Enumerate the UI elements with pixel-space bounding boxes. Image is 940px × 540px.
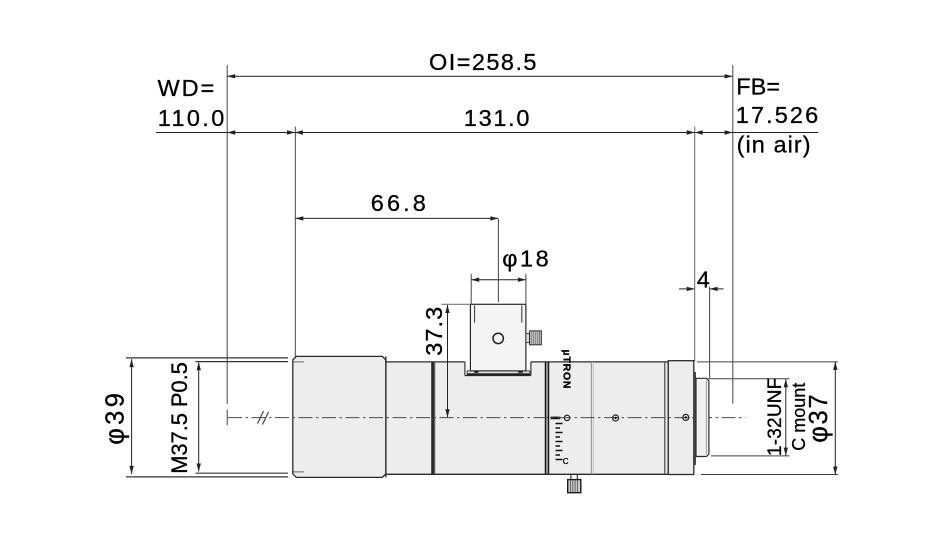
svg-text:17.526: 17.526 xyxy=(736,102,820,128)
svg-text:φ39: φ39 xyxy=(101,390,129,445)
svg-text:FB=: FB= xyxy=(736,74,780,100)
svg-text:µTRON: µTRON xyxy=(561,350,573,390)
svg-text:110.0: 110.0 xyxy=(158,105,227,131)
svg-text:M37.5 P0.5: M37.5 P0.5 xyxy=(167,362,192,474)
svg-text:φ37: φ37 xyxy=(805,392,833,442)
svg-text:OI=258.5: OI=258.5 xyxy=(429,49,538,75)
svg-text:1-32UNF: 1-32UNF xyxy=(765,378,786,456)
svg-text:66.8: 66.8 xyxy=(371,190,429,216)
svg-text:37.3: 37.3 xyxy=(421,306,447,356)
svg-text:WD=: WD= xyxy=(158,75,217,101)
svg-text:131.0: 131.0 xyxy=(464,105,531,131)
svg-text:C: C xyxy=(563,457,569,466)
svg-text:(in air): (in air) xyxy=(737,132,812,158)
svg-text:4: 4 xyxy=(697,266,710,292)
svg-text:φ18: φ18 xyxy=(502,245,551,271)
